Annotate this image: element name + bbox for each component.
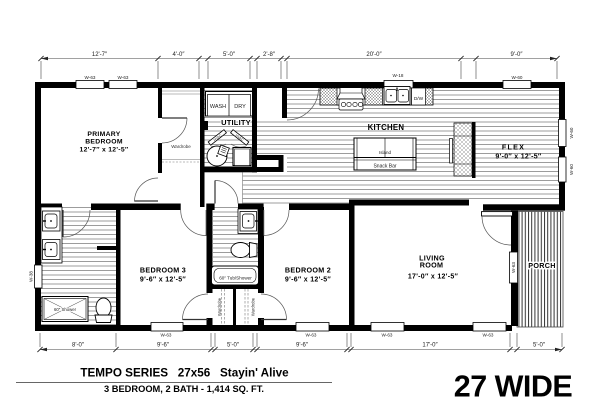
svg-text:D/W: D/W bbox=[414, 96, 424, 102]
svg-text:KITCHEN: KITCHEN bbox=[368, 123, 405, 132]
svg-text:9'-0″ x 12'-5″: 9'-0″ x 12'-5″ bbox=[495, 154, 541, 161]
svg-text:5'-0″: 5'-0″ bbox=[533, 343, 546, 349]
svg-text:W-63: W-63 bbox=[161, 333, 172, 338]
svg-text:W-60: W-60 bbox=[569, 127, 574, 138]
svg-text:BEDROOM: BEDROOM bbox=[85, 139, 123, 146]
svg-text:60″ Tub/Shower: 60″ Tub/Shower bbox=[219, 276, 252, 281]
svg-text:ROOM: ROOM bbox=[420, 261, 444, 270]
svg-text:W-63: W-63 bbox=[483, 333, 494, 338]
svg-text:5'-0″: 5'-0″ bbox=[223, 52, 236, 58]
svg-text:W-18: W-18 bbox=[393, 73, 404, 78]
svg-text:W-63: W-63 bbox=[118, 75, 129, 80]
svg-text:DRY: DRY bbox=[234, 104, 246, 110]
svg-text:Island: Island bbox=[379, 150, 392, 155]
svg-text:9'-6″ x 12'-5″: 9'-6″ x 12'-5″ bbox=[140, 277, 186, 284]
svg-text:Wardrobe: Wardrobe bbox=[217, 297, 222, 316]
svg-text:PORCH: PORCH bbox=[528, 261, 555, 270]
svg-text:UTILITY: UTILITY bbox=[221, 118, 251, 127]
svg-text:TEMPO SERIES 27x56 Stayin': TEMPO SERIES 27x56 Stayin' Alive bbox=[80, 367, 289, 380]
svg-text:12'-7″ x 12'-5″: 12'-7″ x 12'-5″ bbox=[79, 147, 128, 154]
svg-text:27 WIDE: 27 WIDE bbox=[454, 370, 573, 404]
svg-text:WASH: WASH bbox=[210, 104, 226, 110]
svg-text:Wardrobe: Wardrobe bbox=[251, 297, 256, 316]
svg-text:PRIMARY: PRIMARY bbox=[87, 131, 120, 138]
svg-text:5'-0″: 5'-0″ bbox=[227, 343, 240, 349]
svg-text:20'-0″: 20'-0″ bbox=[366, 52, 382, 58]
svg-text:12'-7″: 12'-7″ bbox=[92, 52, 108, 58]
svg-text:W-63: W-63 bbox=[511, 262, 516, 273]
svg-text:4'-0″: 4'-0″ bbox=[173, 52, 186, 58]
svg-text:9'-6″: 9'-6″ bbox=[157, 343, 170, 349]
svg-text:8'-0″: 8'-0″ bbox=[72, 343, 85, 349]
svg-text:Snack Bar: Snack Bar bbox=[373, 164, 396, 170]
svg-text:BEDROOM 3: BEDROOM 3 bbox=[140, 266, 186, 275]
svg-text:17'-0″ x 12'-5″: 17'-0″ x 12'-5″ bbox=[408, 274, 459, 281]
svg-text:3 BEDROOM, 2 BATH - 1,414 SQ.: 3 BEDROOM, 2 BATH - 1,414 SQ. FT. bbox=[104, 384, 264, 394]
svg-text:W-63: W-63 bbox=[85, 75, 96, 80]
svg-text:17'-0″: 17'-0″ bbox=[422, 343, 438, 349]
svg-text:W-60: W-60 bbox=[569, 164, 574, 175]
svg-text:2'-8″: 2'-8″ bbox=[263, 52, 276, 58]
svg-text:9'-6″ x 12'-5″: 9'-6″ x 12'-5″ bbox=[285, 277, 331, 284]
svg-text:W-63: W-63 bbox=[382, 333, 393, 338]
svg-text:9'-6″: 9'-6″ bbox=[296, 343, 309, 349]
svg-text:Wardrobe: Wardrobe bbox=[171, 144, 191, 149]
svg-text:BEDROOM 2: BEDROOM 2 bbox=[285, 266, 331, 275]
svg-text:W-63: W-63 bbox=[306, 333, 317, 338]
svg-text:FLEX: FLEX bbox=[502, 143, 525, 152]
svg-text:W-38: W-38 bbox=[29, 271, 34, 282]
svg-text:W-60: W-60 bbox=[512, 75, 523, 80]
svg-text:9'-0″: 9'-0″ bbox=[511, 52, 524, 58]
svg-text:60″ Shower: 60″ Shower bbox=[54, 307, 77, 312]
